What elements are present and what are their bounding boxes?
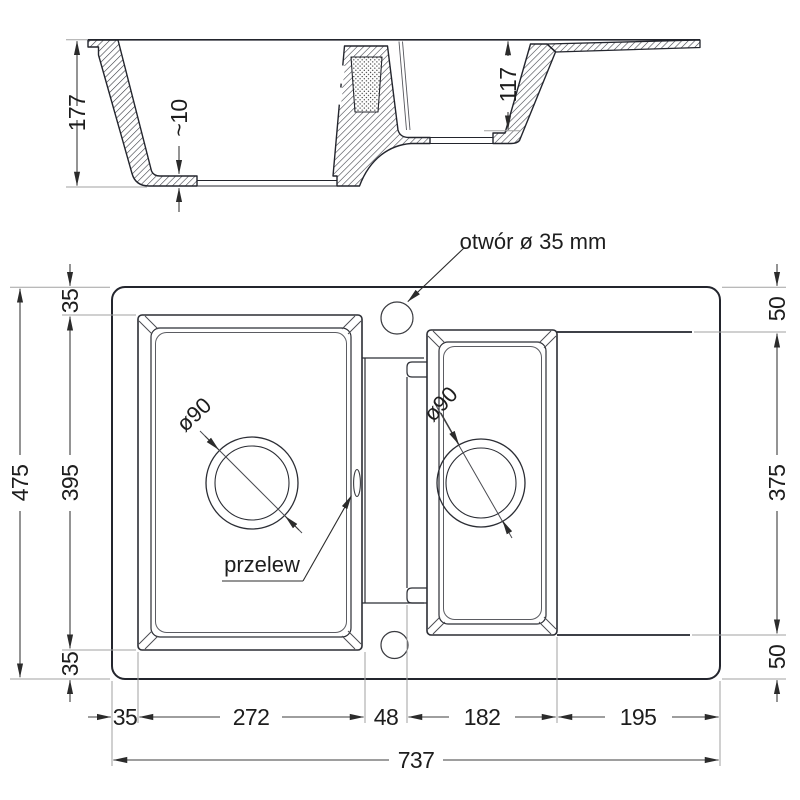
dim-bottom-thickness: ~10 — [166, 99, 192, 212]
section-edge-line-1 — [399, 42, 407, 131]
sink-technical-drawing: 177 ~10 117 — [0, 0, 800, 800]
dim-195-label: 195 — [620, 704, 657, 730]
dim-35-left-label: 35 — [113, 704, 137, 730]
sink-outline — [112, 287, 720, 679]
dim-50-top-label: 50 — [764, 297, 790, 321]
overflow-slot — [354, 470, 361, 497]
section-view: 177 ~10 117 — [64, 40, 700, 212]
dim-10-label: ~10 — [166, 99, 192, 136]
second-bowl-inner2 — [444, 347, 542, 620]
dim-375-label: 375 — [764, 465, 790, 502]
dim-177-label: 177 — [64, 95, 90, 132]
tap-hole-bottom — [381, 632, 408, 659]
second-drain: ø90 — [418, 381, 525, 538]
second-bowl-chamfers — [428, 331, 556, 634]
dim-395-label: 395 — [57, 465, 83, 502]
main-drain: ø90 — [171, 392, 302, 533]
drawing-canvas: 177 ~10 117 — [0, 0, 800, 800]
dim-35-bottom-label: 35 — [57, 652, 83, 676]
main-bowl-chamfers — [139, 316, 361, 649]
deck-channel — [362, 358, 427, 603]
dim-35-top-label: 35 — [57, 289, 83, 313]
second-drain-label: ø90 — [418, 381, 462, 426]
extension-lines — [10, 287, 786, 766]
dim-272-label: 272 — [233, 704, 270, 730]
tap-hole-label: otwór ø 35 mm — [460, 229, 607, 254]
plan-dimensions: 475 35 395 35 50 375 50 — [7, 264, 790, 773]
annotations: otwór ø 35 mm przelew — [222, 229, 606, 581]
overflow-leader — [303, 496, 351, 581]
second-bowl-inner — [439, 342, 546, 624]
dim-48-label: 48 — [374, 704, 398, 730]
section-edge-line-2 — [403, 42, 411, 131]
main-drain-label: ø90 — [171, 392, 216, 436]
tap-hole-leader — [408, 248, 464, 302]
plan-view: ø90 ø90 — [112, 287, 720, 679]
section-divider-core-dots — [351, 57, 382, 112]
dim-117-label: 117 — [495, 68, 521, 103]
dim-182-label: 182 — [464, 704, 501, 730]
section-drainer-slab — [547, 40, 700, 52]
overflow-label: przelew — [224, 552, 300, 577]
dim-50-bottom-label: 50 — [764, 645, 790, 669]
dim-737-label: 737 — [398, 747, 435, 773]
main-bowl-outer — [138, 315, 362, 650]
dim-475-label: 475 — [7, 465, 33, 502]
tap-hole-top — [381, 302, 413, 334]
